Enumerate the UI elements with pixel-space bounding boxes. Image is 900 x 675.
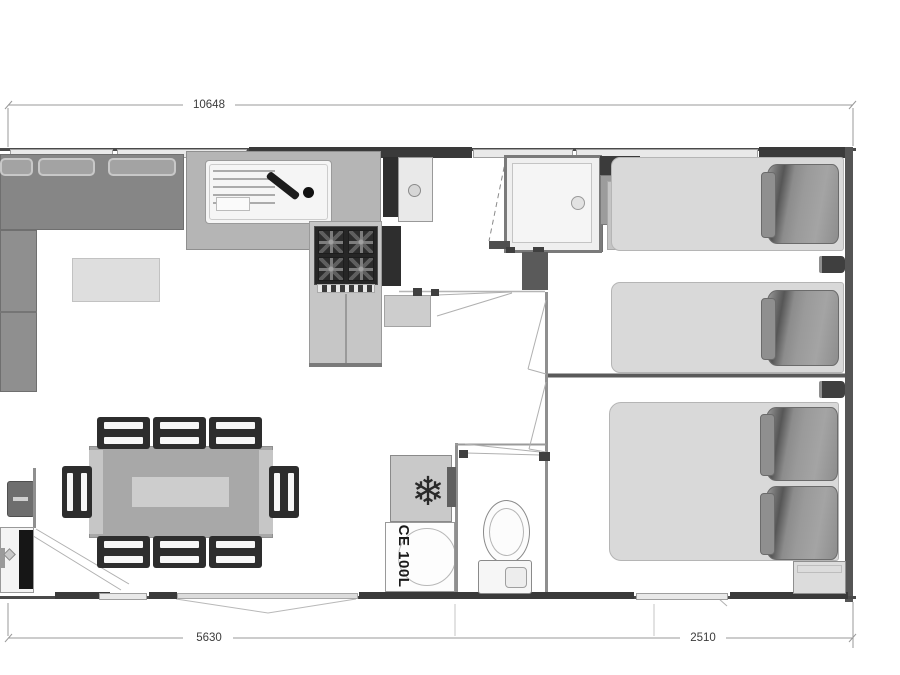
counter-extension-handle	[413, 288, 422, 296]
dining-chair-bottom-2	[153, 536, 206, 568]
single-bed-2-pillow	[767, 290, 839, 366]
entry-knob	[0, 548, 5, 568]
nightstand-2	[819, 381, 845, 398]
cabinet-door-divider	[345, 294, 347, 364]
hall-door-track-nub	[539, 452, 550, 461]
sofa-cushion-3	[108, 158, 176, 176]
dining-chair-top-2	[153, 417, 206, 449]
bathroom-cabinet	[522, 252, 548, 290]
oven-column	[382, 226, 401, 286]
dimension-master-width: 2510	[680, 631, 726, 645]
dining-chair-right	[269, 466, 299, 518]
bottom-bay-door	[177, 593, 358, 599]
single-bed-1-pillow	[767, 164, 839, 244]
floorplan-canvas: ❄ CE 100L 10648 5630 2510	[0, 0, 900, 675]
dining-chair-left	[62, 466, 92, 518]
hob-burner-4	[348, 257, 374, 281]
sofa-cushion-2	[38, 158, 95, 176]
counter-extension	[384, 295, 431, 327]
water-heater-label: CE 100L	[374, 526, 434, 586]
bedroom-bench	[793, 561, 846, 594]
hob-burner-2	[348, 230, 374, 254]
dimension-living-width: 5630	[185, 631, 233, 645]
dining-table-runner	[132, 477, 229, 507]
toilet-bowl-inner	[489, 508, 524, 556]
shower-tray	[504, 155, 602, 253]
hob-burner-1	[318, 230, 344, 254]
entry-door-panel	[19, 530, 33, 589]
shower-drain	[571, 196, 585, 210]
sofa-cushion-1	[0, 158, 33, 176]
shower-track-nub-1	[506, 247, 515, 253]
dining-chair-top-3	[209, 417, 262, 449]
hob-knob-strip	[317, 284, 375, 293]
tv-unit-handle	[13, 497, 28, 501]
dimension-overall-width: 10648	[183, 98, 235, 112]
sink-drain	[303, 187, 314, 198]
bottom-window-1	[99, 593, 147, 600]
fridge-side-cabinet	[447, 467, 456, 507]
bottom-window-2	[636, 593, 728, 600]
wc-door-hinge-nub	[459, 450, 468, 458]
toilet-tank-detail	[505, 567, 527, 588]
basin-dark-cabinet	[383, 157, 398, 217]
dining-chair-bottom-3	[209, 536, 262, 568]
sink-soap-dish	[216, 197, 250, 211]
bottom-wall-seg-2	[149, 592, 177, 599]
washbasin-faucet	[408, 184, 421, 197]
dining-chair-top-1	[97, 417, 150, 449]
dining-chair-bottom-1	[97, 536, 150, 568]
gas-hob	[314, 226, 378, 285]
hob-burner-3	[318, 257, 344, 281]
nightstand-1	[819, 256, 845, 273]
bedroom-bench-inner	[797, 565, 842, 573]
coffee-table	[72, 258, 160, 302]
entry-wall-stub	[33, 468, 36, 528]
double-bed-pillow-2	[766, 486, 838, 560]
bathroom-door-hinge-nub	[431, 289, 439, 296]
double-bed-pillow-1	[766, 407, 838, 481]
cabinet-bottom-edge	[309, 363, 382, 367]
sofa-arm-divider	[0, 311, 37, 313]
right-wall	[845, 147, 853, 602]
